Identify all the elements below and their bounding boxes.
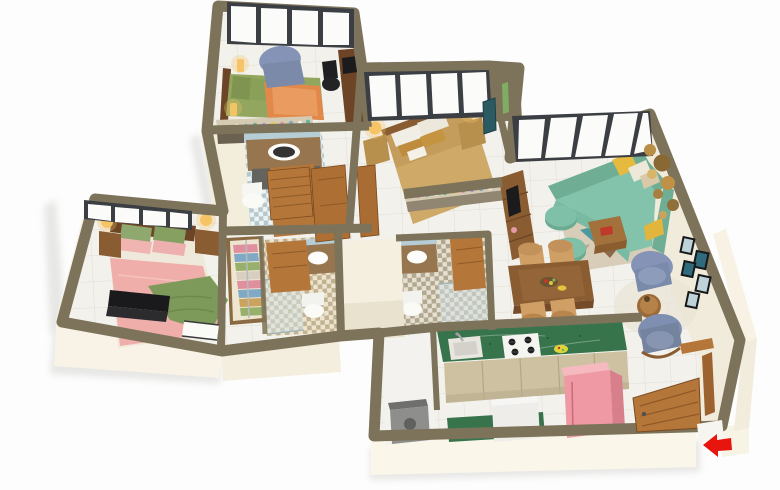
shaft-vent — [502, 82, 509, 114]
candle-lamp-2 — [224, 99, 242, 117]
wardrobe-doors — [267, 167, 313, 220]
gas-stove — [502, 333, 541, 359]
armchair-blue-seat — [262, 60, 305, 88]
pillow-green-1 — [231, 76, 252, 100]
office-chair-back — [322, 60, 338, 80]
floor-plan-render — [0, 0, 780, 490]
nightstand-left — [99, 231, 121, 258]
window-middle-bedroom — [364, 70, 492, 121]
central-block — [337, 238, 405, 341]
sink — [308, 252, 328, 265]
office-chair-seat — [322, 77, 340, 91]
fruit-plate — [540, 277, 558, 287]
nightstand-right — [195, 229, 219, 256]
door-step — [182, 321, 219, 340]
window-guest-bedroom — [227, 2, 354, 48]
wall-roomA-south — [207, 126, 369, 130]
yellow-plate — [554, 345, 568, 353]
candle-lamp-1 — [231, 55, 249, 73]
door-handle — [642, 412, 646, 416]
toilet-bowl — [242, 194, 264, 209]
sink — [407, 251, 427, 264]
blanket-orange-fold — [272, 86, 318, 116]
toilet-bowl — [402, 302, 422, 316]
wall-utility-divider — [433, 329, 437, 410]
wall-wardrobe-east — [338, 232, 341, 336]
door — [450, 236, 486, 291]
toilet-bowl — [304, 304, 324, 318]
wall-master-east — [221, 211, 223, 351]
bedroom-wall-art — [483, 98, 496, 134]
window-living-room — [512, 111, 653, 162]
